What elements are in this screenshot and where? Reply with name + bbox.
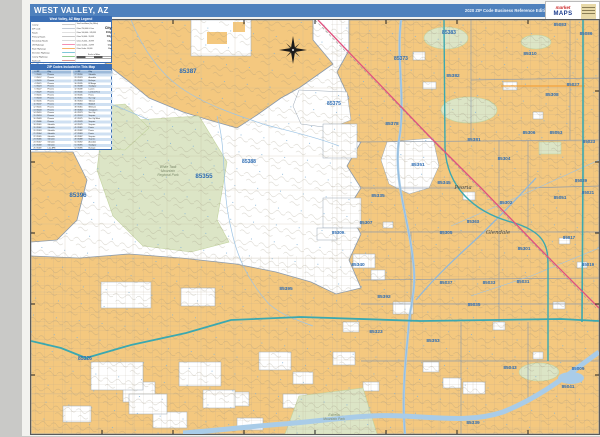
zip-label: 85041 [562, 384, 575, 389]
zip-label: 85373 [394, 56, 408, 62]
city-label: Peoria [453, 185, 471, 191]
zip-label: 85339 [466, 420, 480, 426]
zip-table-row: 2685309Luke AFB [32, 147, 72, 150]
zip-label: 85035 [468, 302, 481, 307]
zip-label: 85351 [411, 162, 425, 168]
zip-label: 85306 [523, 130, 536, 135]
zip-label: 85345 [437, 180, 451, 186]
zip-label: 85382 [446, 73, 460, 79]
zip-label: 85335 [371, 193, 385, 199]
zip-table-panel: ZIP Codes Included in This Map #ZIPCity1… [30, 64, 112, 150]
zip-label: 85023 [583, 139, 596, 144]
legend-cities-column: Total Land Area (Sq. Miles)Cities 250,00… [75, 23, 112, 63]
legend-panel: West Valley, AZ Map Legend CountyZIP Cod… [30, 16, 112, 63]
zip-table-row: 5285396Buckeye [73, 147, 113, 150]
zip-label: 85027 [567, 82, 580, 87]
zip-label: 85396 [69, 192, 87, 199]
zip-label: 85323 [369, 329, 383, 335]
zip-label: 85353 [426, 338, 440, 344]
zip-label: 85017 [563, 235, 576, 240]
zip-label: 85340 [351, 262, 365, 268]
zip-label: 85308 [545, 92, 559, 98]
zip-label: 85083 [554, 22, 567, 27]
zip-label: 85043 [503, 365, 517, 371]
zip-label: 85381 [467, 137, 481, 143]
zip-label: 85395 [279, 286, 293, 292]
city-label: Glendale [486, 230, 510, 236]
zip-label: 85375 [327, 101, 341, 107]
zip-label: 85388 [242, 159, 256, 165]
zip-label: 85021 [582, 190, 595, 195]
zip-label: 85309 [332, 230, 345, 235]
legend-city-class: Cities Under 10,000City [77, 48, 112, 52]
zip-label: 85051 [554, 195, 567, 200]
legend-item: Railroads [32, 59, 75, 63]
zip-label: 85355 [195, 173, 213, 180]
zip-label: 85310 [523, 51, 537, 57]
zip-label: 85031 [517, 279, 530, 284]
edition-label: 2020 ZIP Code Business Reference Edition [465, 8, 550, 13]
zip-label: 85033 [483, 280, 496, 285]
zip-label: 85378 [385, 121, 399, 127]
logo-side-card [581, 4, 596, 19]
logo-wordmark: market MAPS [546, 6, 580, 17]
zip-label: 85037 [440, 280, 453, 285]
zip-label: 85053 [550, 130, 563, 135]
zip-label: 85086 [580, 31, 593, 36]
zip-label: 85029 [575, 178, 588, 183]
zip-table-column-1: #ZIPCity185009Phoenix285017Phoenix385019… [32, 71, 72, 151]
zip-label: 85302 [500, 200, 513, 205]
zip-label: 85304 [498, 156, 511, 161]
map-canvas: White TankMountainRegional ParkEstrellaM… [30, 19, 600, 435]
zip-table-column-2: #ZIPCity2785310Glendale2885323Avondale29… [73, 71, 113, 151]
zip-label: 85387 [179, 68, 197, 75]
legend-symbols-column: CountyZIP CodeRoadsPrimary RoadsSecondar… [32, 23, 75, 63]
zip-label: 85392 [377, 294, 391, 300]
zip-label: 85363 [467, 219, 480, 224]
map-title: WEST VALLEY, AZ [34, 6, 109, 15]
scale-bar: Scale in Miles [77, 53, 112, 59]
zip-label: 85307 [360, 220, 373, 225]
zip-label: 85019 [582, 262, 595, 267]
zip-label: 85305 [440, 230, 453, 235]
zip-label: 85383 [442, 30, 456, 36]
zip-label: 85301 [518, 246, 531, 251]
zip-label: 85009 [572, 366, 585, 371]
zip-label: 85326 [78, 356, 92, 362]
